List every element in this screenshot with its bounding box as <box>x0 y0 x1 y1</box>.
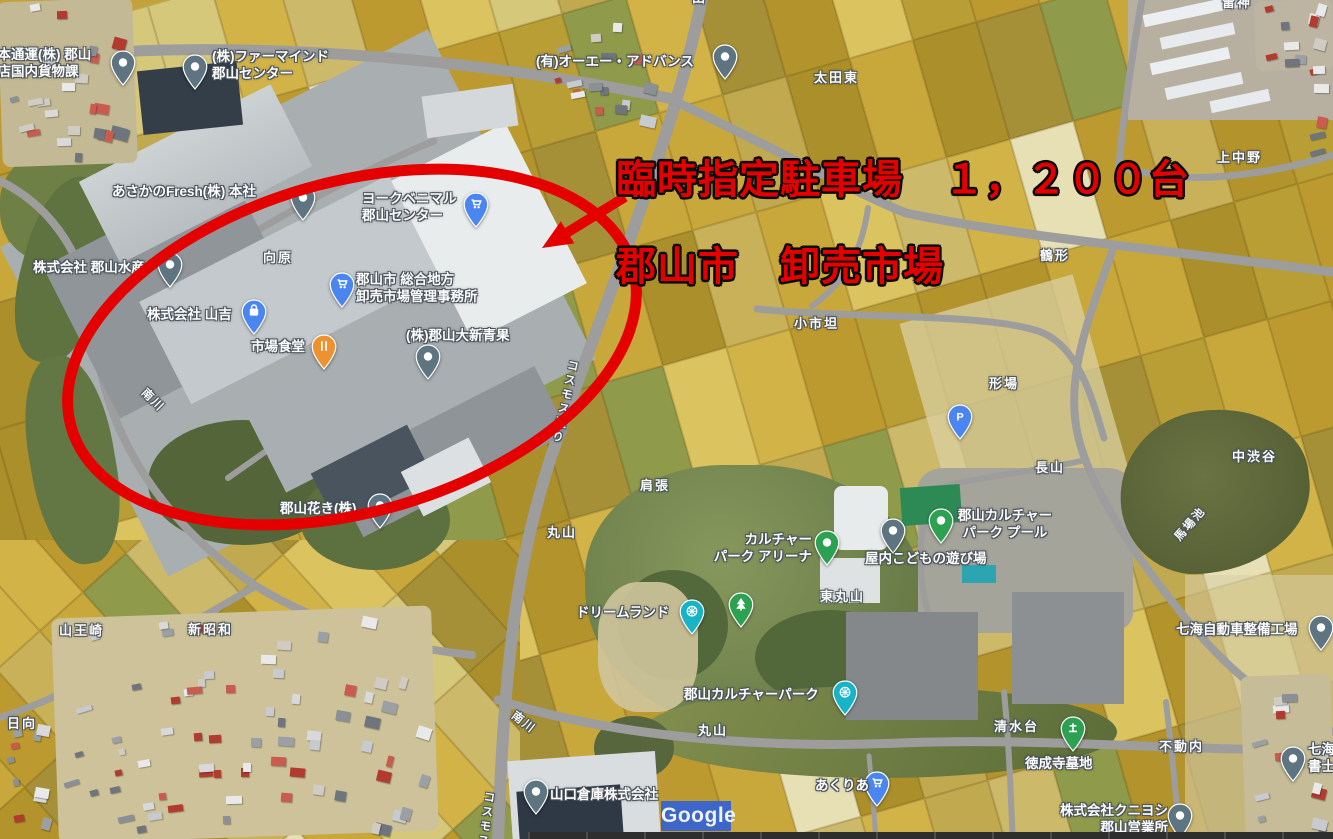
highlight-ellipse <box>26 108 678 586</box>
red-annotation-layer <box>0 0 1333 839</box>
bottom-edge-strip <box>528 832 1333 839</box>
annotation-text-line1: 臨時指定駐車場 １，２００台 <box>616 147 1190 205</box>
satellite-map: P日本通運(株) 郡山 支店国内貨物課(株)ファーマインド 郡山センター(有)オ… <box>0 0 1333 839</box>
annotation-text-line2: 郡山市 卸売市場 <box>616 234 944 292</box>
google-logo[interactable]: Google <box>661 801 731 831</box>
